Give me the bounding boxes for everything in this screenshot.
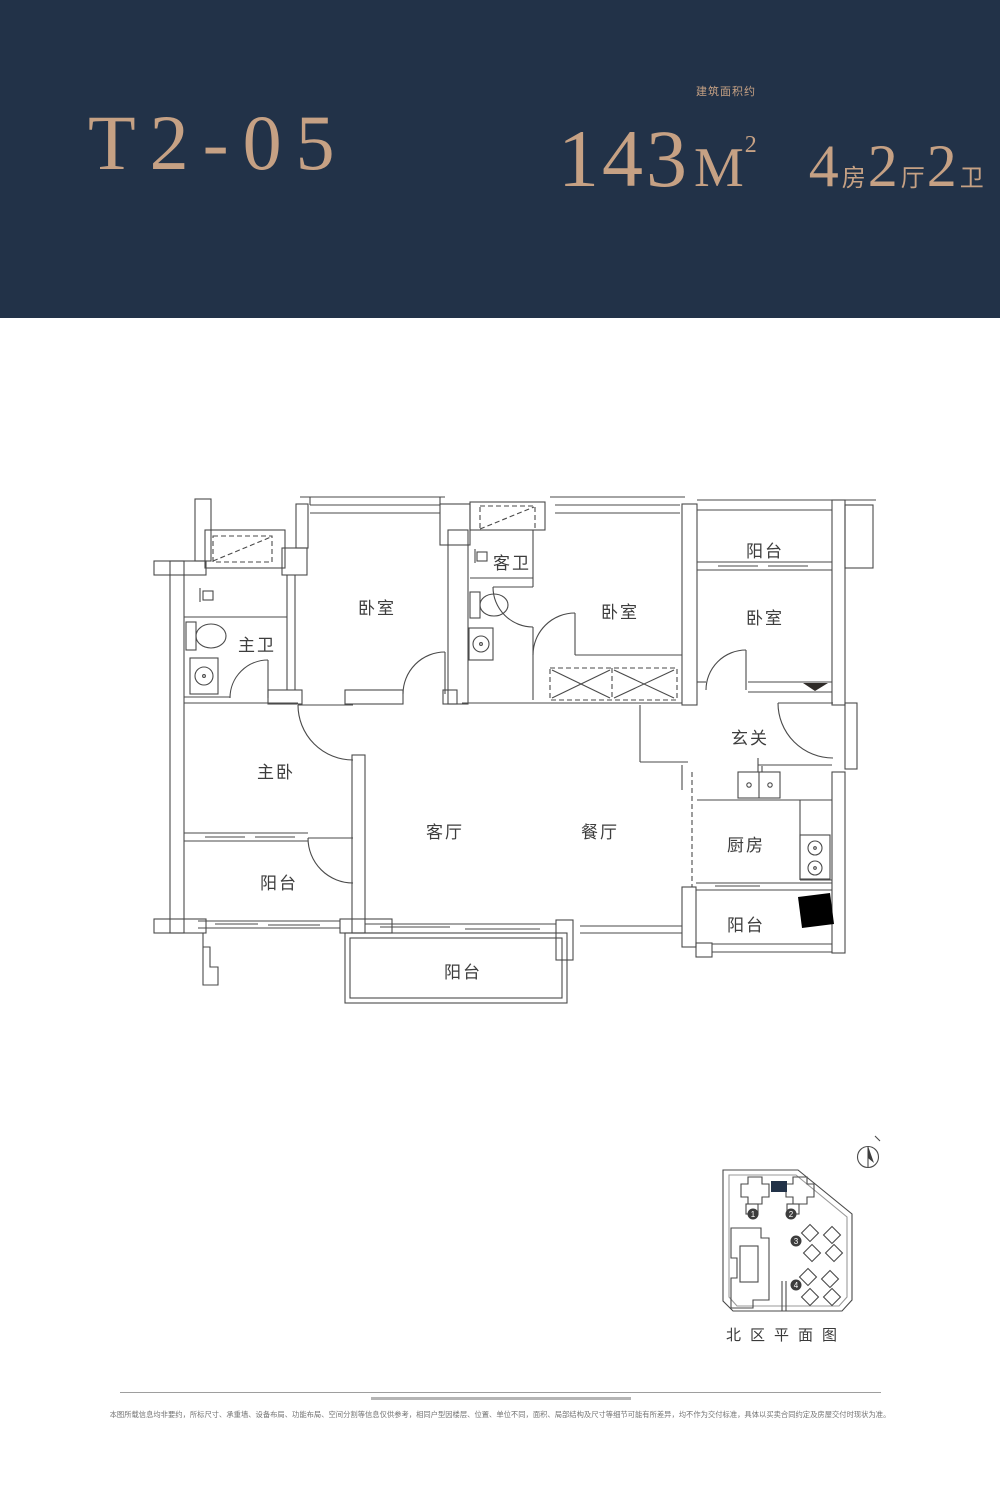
wardrobe-icon: [550, 668, 677, 700]
site-marker-1: 1: [751, 1210, 756, 1219]
site-markers: 1 2 3 4: [748, 1209, 802, 1291]
disclaimer-text: 本图所载信息均非要约，所标尺寸、承重墙、设备布局、功能布局、空间分割等信息仅供参…: [0, 1410, 1000, 1420]
room-label-balcony-top: 阳台: [746, 542, 784, 561]
floorplan-drawing: 客卫 阳台 卧室 卧室 卧室 主卫 玄关 主卧 客厅 餐厅 厨房 阳台 阳台 阳…: [0, 0, 1000, 1499]
room-labels: 客卫 阳台 卧室 卧室 卧室 主卫 玄关 主卧 客厅 餐厅 厨房 阳台 阳台 阳…: [238, 542, 784, 982]
site-marker-2: 2: [789, 1210, 794, 1219]
building-large-outline: [731, 1228, 769, 1308]
room-label-dining-room: 餐厅: [581, 823, 619, 842]
site-marker-3: 3: [794, 1237, 799, 1246]
room-label-balcony-kitchen: 阳台: [727, 916, 765, 935]
room-label-bedroom-right: 卧室: [746, 609, 784, 628]
guest-bath-sink-icon: [469, 628, 493, 660]
room-label-kitchen: 厨房: [727, 836, 765, 855]
highlighted-unit-marker: [771, 1181, 787, 1192]
room-label-guest-bath: 客卫: [493, 554, 531, 573]
master-bath-toilet-icon: [186, 622, 226, 650]
room-label-living-room: 客厅: [426, 823, 464, 842]
room-label-balcony-master: 阳台: [260, 874, 298, 893]
tower-1-outline: [741, 1177, 769, 1204]
master-bath-sink-icon: [190, 658, 218, 694]
site-plan: 1 2 3 4 北区平面图: [723, 1136, 880, 1344]
site-plan-title: 北区平面图: [726, 1327, 846, 1344]
kitchen-stove-icon: [800, 835, 830, 879]
room-label-bedroom-middle: 卧室: [601, 603, 639, 622]
room-label-master-bath: 主卫: [238, 636, 276, 655]
site-marker-4: 4: [794, 1281, 799, 1290]
tower-2-outline: [786, 1177, 814, 1204]
building-cluster-3: [802, 1225, 843, 1262]
room-label-foyer: 玄关: [731, 729, 769, 748]
footer-divider-thick: [371, 1397, 631, 1400]
footer-divider-thin: [120, 1392, 881, 1393]
kitchen-sink-icon: [738, 766, 780, 798]
room-label-bedroom-left: 卧室: [358, 599, 396, 618]
room-label-balcony-bottom: 阳台: [444, 963, 482, 982]
guest-bath-toilet-icon: [470, 592, 508, 618]
master-bath-tap-icon: [200, 588, 213, 602]
building-cluster-4: [800, 1269, 841, 1306]
compass-icon: [858, 1136, 881, 1168]
room-label-master-bedroom: 主卧: [257, 763, 295, 782]
guest-bath-tap-icon: [475, 549, 487, 563]
